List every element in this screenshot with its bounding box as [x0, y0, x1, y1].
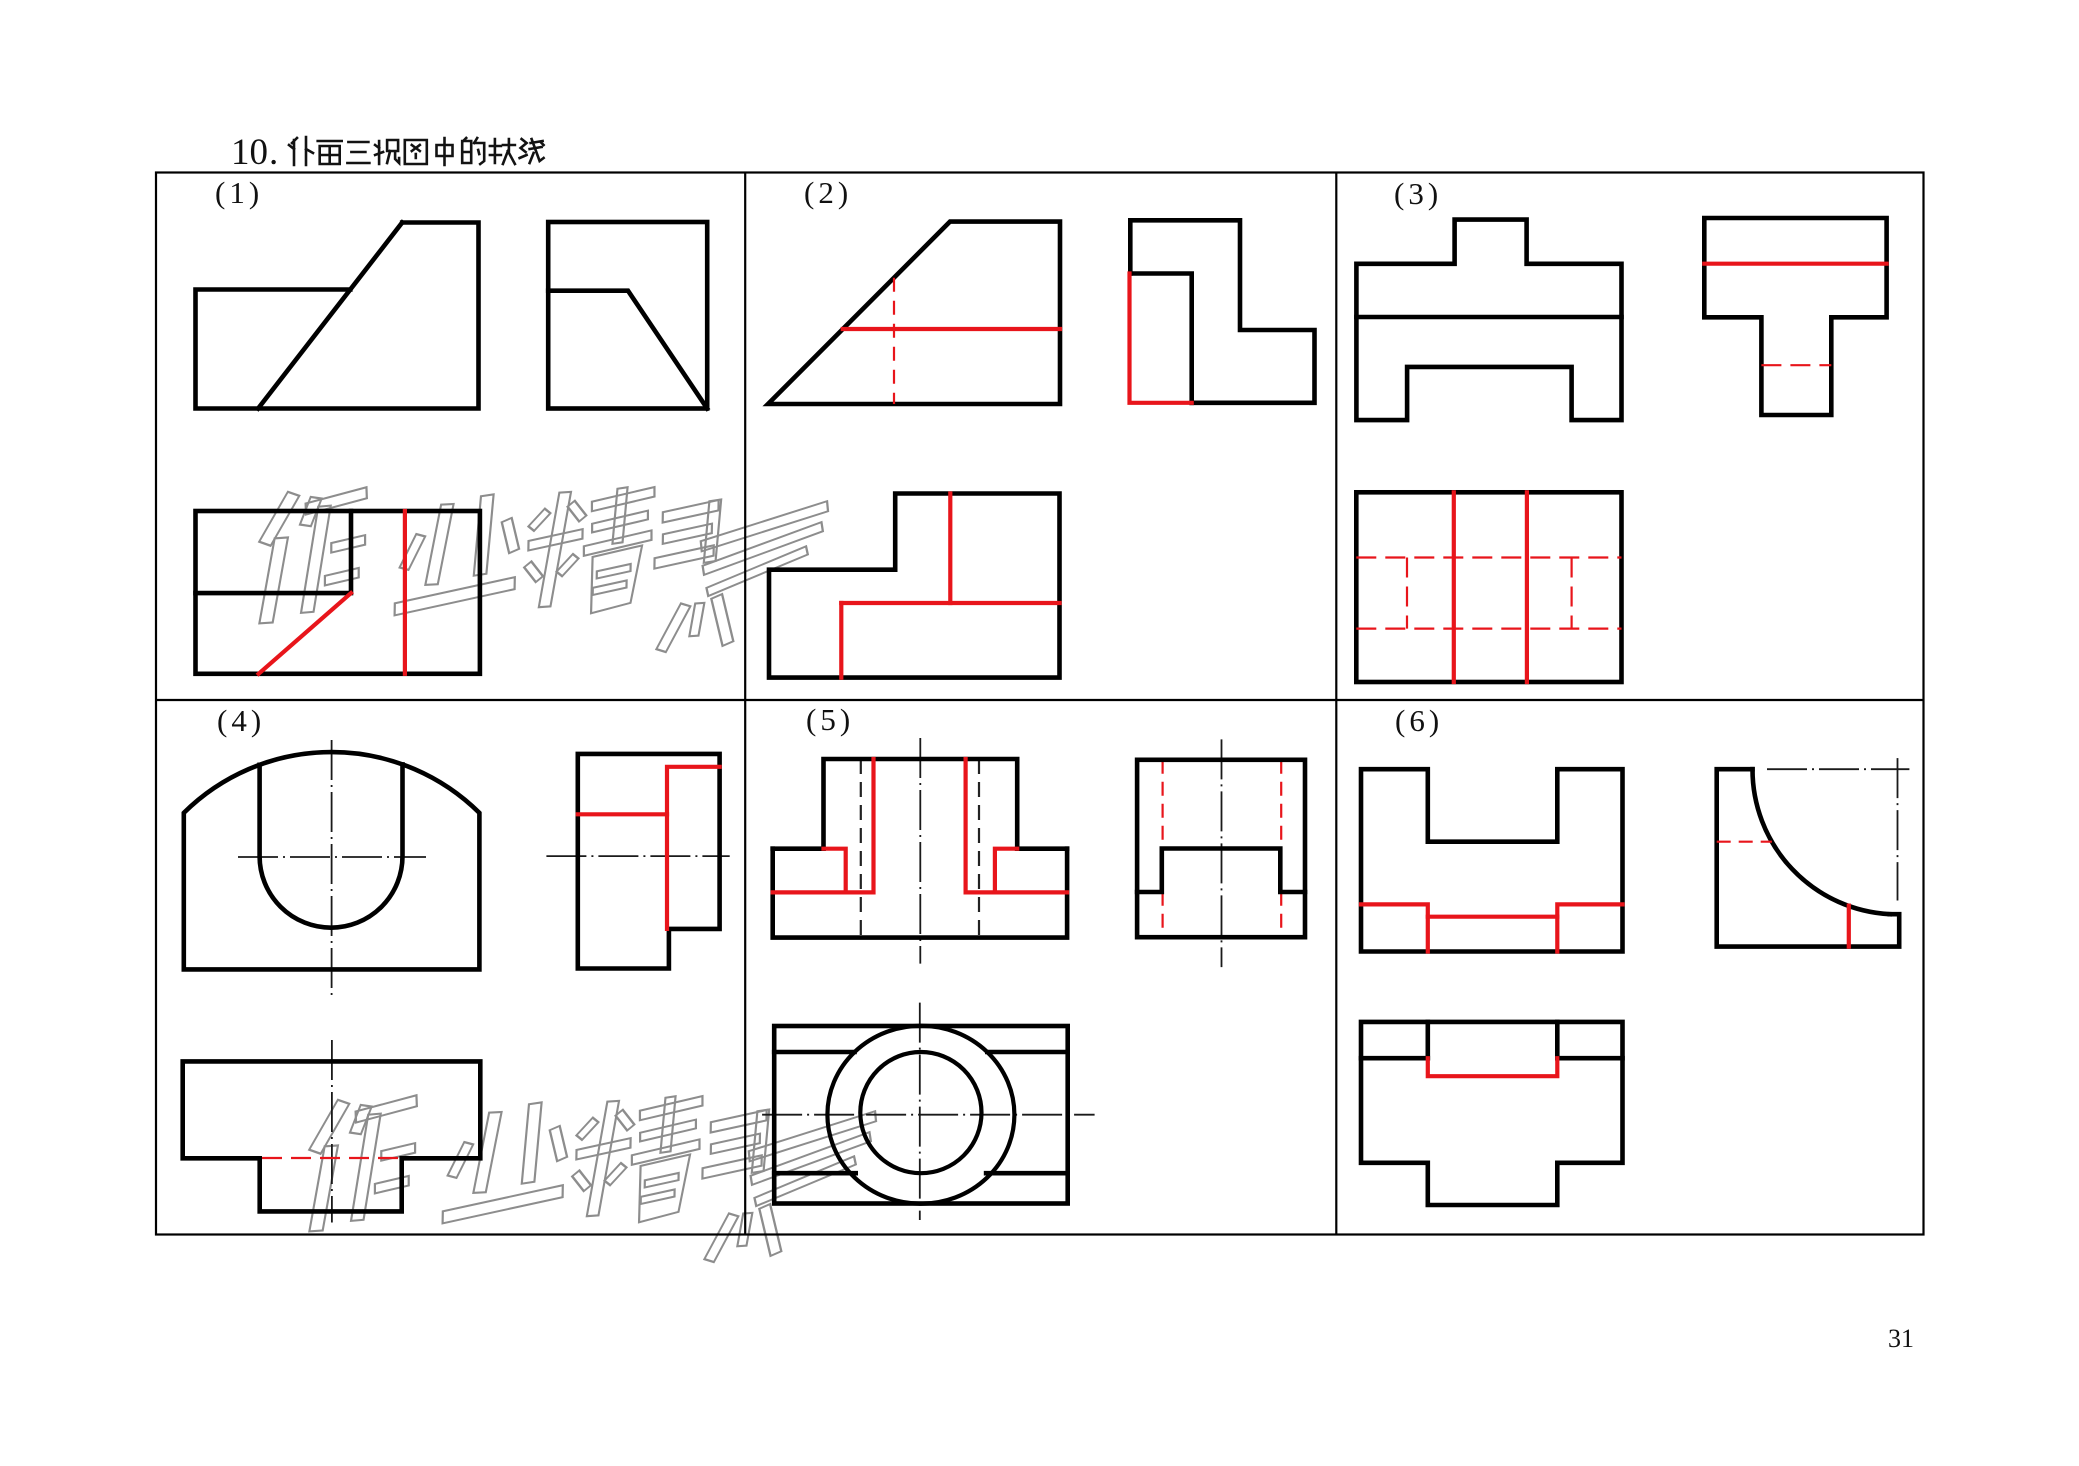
svg-text:(3): (3) — [1394, 176, 1442, 211]
svg-text:(5): (5) — [806, 702, 854, 737]
svg-text:(1): (1) — [215, 175, 263, 210]
svg-text:(4): (4) — [217, 703, 265, 738]
svg-text:.: . — [269, 132, 278, 173]
svg-text:(2): (2) — [804, 175, 852, 210]
svg-text:31: 31 — [1888, 1324, 1914, 1353]
svg-text:(6): (6) — [1395, 703, 1443, 738]
svg-text:10: 10 — [231, 132, 268, 173]
